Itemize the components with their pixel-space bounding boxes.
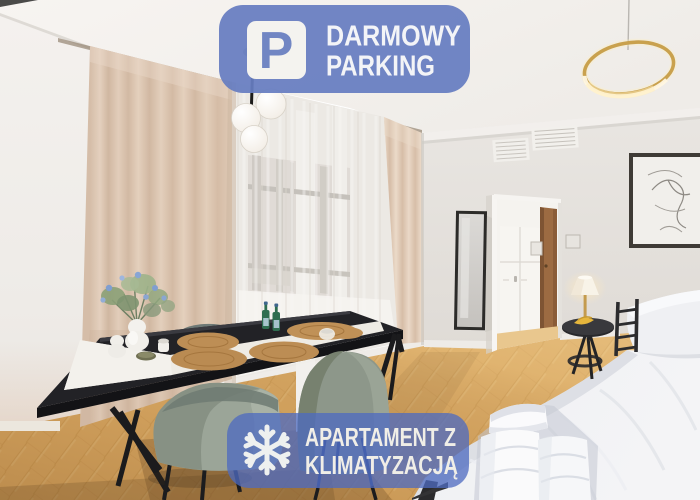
- svg-text:P: P: [259, 22, 294, 80]
- svg-text:PARKING: PARKING: [326, 51, 435, 83]
- svg-text:KLIMATYZACJĄ: KLIMATYZACJĄ: [305, 450, 458, 480]
- svg-text:APARTAMENT Z: APARTAMENT Z: [305, 422, 456, 452]
- svg-text:DARMOWY: DARMOWY: [326, 21, 461, 53]
